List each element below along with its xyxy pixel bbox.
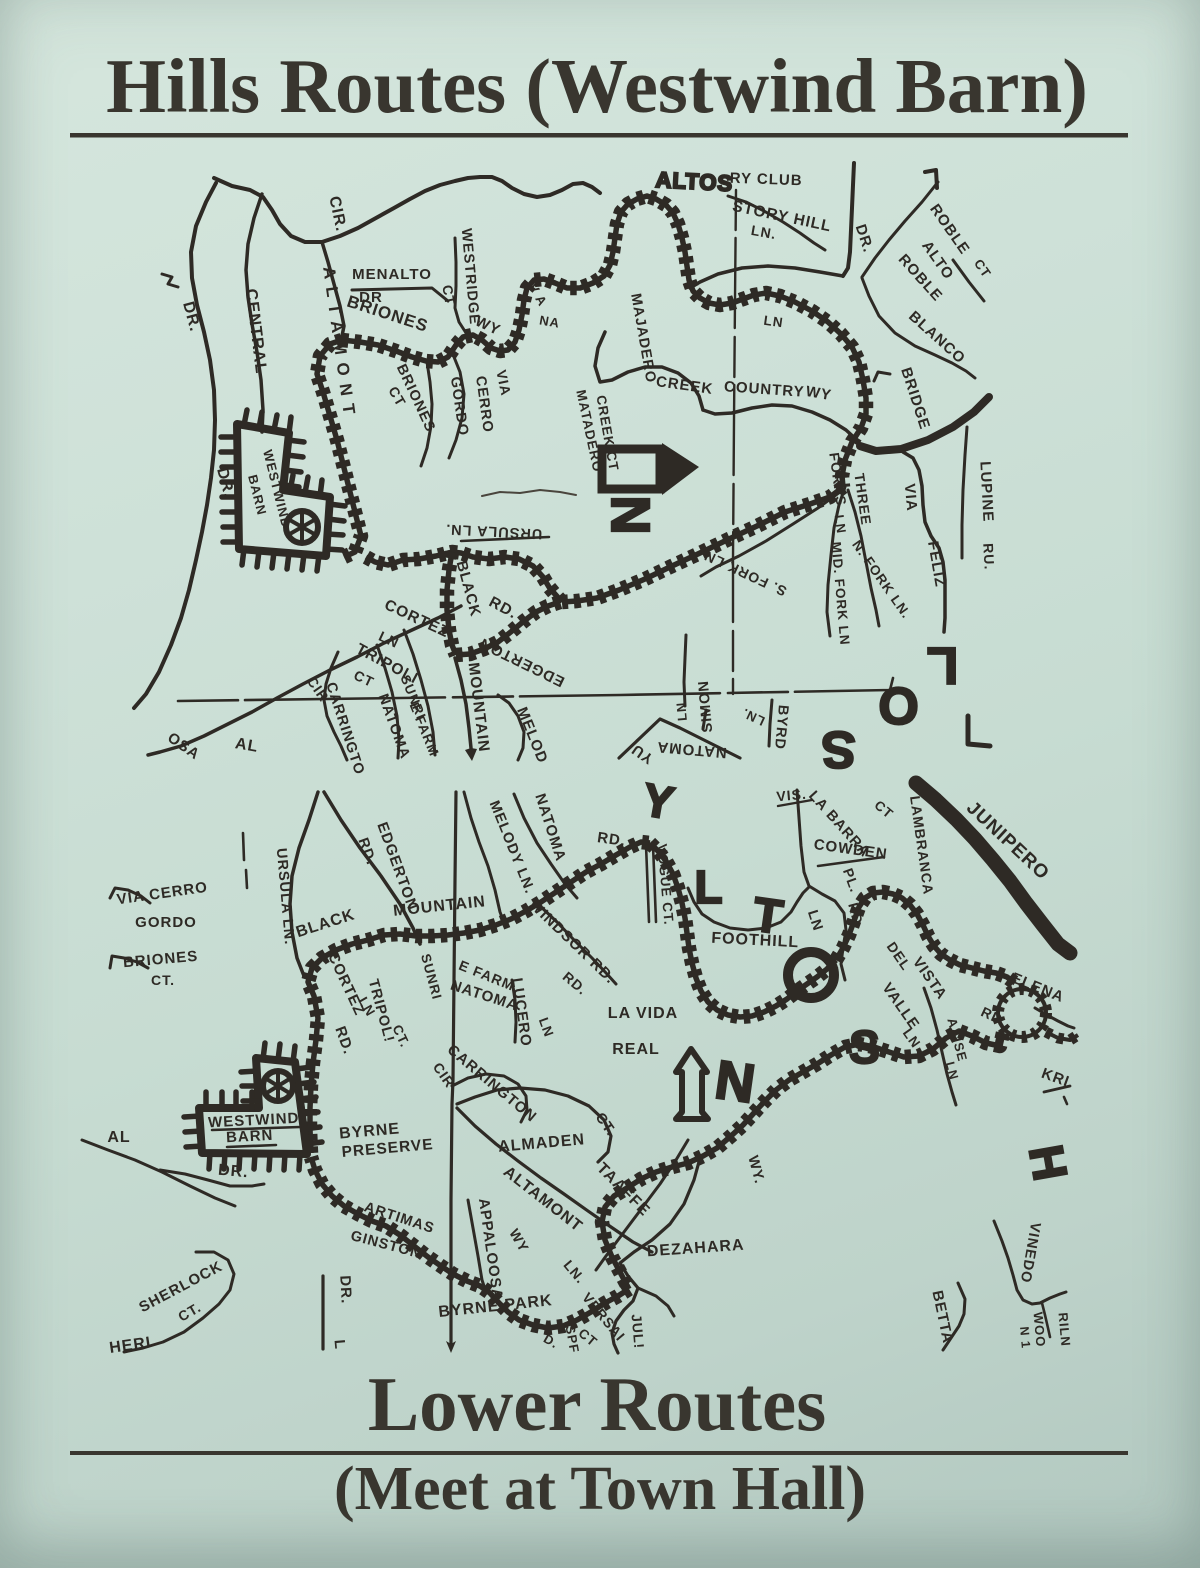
svg-text:RD: RD xyxy=(845,901,866,927)
svg-text:LN: LN xyxy=(804,908,826,933)
svg-text:S: S xyxy=(820,720,856,778)
svg-text:ARTIMAS: ARTIMAS xyxy=(362,1199,436,1237)
svg-text:ROBLE: ROBLE xyxy=(895,251,946,305)
svg-text:(Meet at Town Hall): (Meet at Town Hall) xyxy=(334,1455,866,1523)
svg-text:AAISE: AAISE xyxy=(944,1016,970,1063)
svg-text:H: H xyxy=(1018,1141,1076,1185)
svg-text:RILN: RILN xyxy=(1056,1312,1074,1348)
svg-text:N: N xyxy=(600,496,660,535)
svg-text:ALTO: ALTO xyxy=(918,238,957,283)
svg-text:BRIONES: BRIONES xyxy=(122,948,199,972)
svg-text:VOGUE CT.: VOGUE CT. xyxy=(654,843,676,926)
svg-text:DR.: DR. xyxy=(179,300,203,334)
svg-text:E FARM: E FARM xyxy=(407,700,442,758)
svg-text:N 1: N 1 xyxy=(1017,1326,1033,1350)
svg-text:L: L xyxy=(694,861,723,913)
svg-text:CT: CT xyxy=(871,797,896,821)
svg-text:MAJADERO: MAJADERO xyxy=(627,292,659,384)
svg-text:SUNRI: SUNRI xyxy=(397,673,429,722)
svg-text:SUNRI: SUNRI xyxy=(418,952,445,1001)
svg-text:LN.: LN. xyxy=(750,222,778,242)
svg-text:CT.: CT. xyxy=(151,972,175,988)
svg-text:TRIPOLI: TRIPOLI xyxy=(353,641,421,688)
svg-text:VIS.: VIS. xyxy=(776,786,808,805)
svg-text:URSULA LN.: URSULA LN. xyxy=(445,520,543,541)
svg-text:CERRO: CERRO xyxy=(472,375,496,434)
svg-text:JUL!: JUL! xyxy=(628,1313,647,1349)
svg-text:WY: WY xyxy=(804,383,833,404)
svg-text:PL.: PL. xyxy=(840,866,864,895)
svg-text:O: O xyxy=(877,676,918,734)
svg-text:BYRD: BYRD xyxy=(771,704,791,750)
svg-text:LN: LN xyxy=(900,1026,924,1051)
svg-text:YU: YU xyxy=(628,740,656,767)
svg-text:L: L xyxy=(926,636,959,694)
svg-text:MELOD: MELOD xyxy=(513,705,551,766)
svg-text:LN: LN xyxy=(376,628,401,651)
svg-text:MATADERO: MATADERO xyxy=(573,388,605,473)
svg-text:KRI: KRI xyxy=(1039,1065,1072,1091)
svg-text:AL: AL xyxy=(234,735,260,756)
svg-text:BLACK: BLACK xyxy=(453,559,484,619)
svg-text:RD.: RD. xyxy=(354,836,379,868)
svg-text:DR: DR xyxy=(359,289,383,306)
svg-text:WESTWIND: WESTWIND xyxy=(208,1110,300,1132)
svg-text:WESTWIND: WESTWIND xyxy=(260,448,294,529)
svg-text:STORY HILL: STORY HILL xyxy=(731,198,833,236)
svg-text:MOUNTAIN: MOUNTAIN xyxy=(465,662,493,754)
svg-text:EDGERTON: EDGERTON xyxy=(373,820,421,913)
svg-text:MELODY LN.: MELODY LN. xyxy=(486,799,538,897)
svg-text:GORDO: GORDO xyxy=(447,376,471,437)
svg-text:COUNTRY: COUNTRY xyxy=(724,378,806,401)
svg-text:CT: CT xyxy=(385,384,409,410)
svg-text:WY: WY xyxy=(506,1226,532,1255)
svg-text:LN: LN xyxy=(943,1060,961,1082)
svg-text:TAAFFE: TAAFFE xyxy=(593,1160,653,1220)
svg-text:RU.: RU. xyxy=(980,543,997,571)
svg-text:SIMON: SIMON xyxy=(696,679,717,733)
svg-text:LUPINE: LUPINE xyxy=(976,461,996,523)
svg-text:URSULA LN.: URSULA LN. xyxy=(273,848,297,946)
svg-text:VIA: VIA xyxy=(493,368,514,397)
svg-text:LN: LN xyxy=(763,313,785,331)
svg-text:PRESERVE: PRESERVE xyxy=(341,1136,434,1161)
svg-text:VIA CERRO: VIA CERRO xyxy=(116,879,209,909)
svg-text:CORTEZ: CORTEZ xyxy=(324,950,368,1019)
svg-text:VIA: VIA xyxy=(901,483,920,512)
svg-text:MENALTO: MENALTO xyxy=(352,266,432,283)
svg-text:LN.: LN. xyxy=(560,1257,589,1287)
svg-text:LUCERO: LUCERO xyxy=(508,977,534,1048)
svg-text:RD: RD xyxy=(979,1004,1006,1028)
svg-text:RY CLUB: RY CLUB xyxy=(729,170,802,190)
svg-text:HERI: HERI xyxy=(108,1334,152,1357)
svg-text:OSA: OSA xyxy=(164,729,203,763)
svg-text:APPALOOSA: APPALOOSA xyxy=(475,1197,506,1301)
svg-text:DR.: DR. xyxy=(336,1275,354,1305)
svg-text:RD.: RD. xyxy=(560,968,591,998)
svg-text:WY.: WY. xyxy=(744,1154,767,1186)
svg-text:N. FORK LN.: N. FORK LN. xyxy=(849,537,914,621)
svg-text:BETTA: BETTA xyxy=(928,1289,956,1345)
svg-text:Hills Routes (Westwind Barn): Hills Routes (Westwind Barn) xyxy=(106,43,1088,129)
svg-text:LN: LN xyxy=(355,994,378,1019)
svg-text:SPF: SPF xyxy=(563,1324,583,1354)
svg-text:RD.: RD. xyxy=(596,829,627,850)
svg-text:D.: D. xyxy=(541,1331,561,1351)
svg-text:NATOMA: NATOMA xyxy=(375,692,413,762)
svg-text:BARN: BARN xyxy=(226,1127,274,1146)
svg-text:VERSAI: VERSAI xyxy=(579,1289,629,1344)
svg-text:BYRNE: BYRNE xyxy=(338,1120,400,1142)
svg-text:S. FORK LN.: S. FORK LN. xyxy=(697,545,789,599)
svg-text:CT: CT xyxy=(351,667,376,690)
svg-text:VINEDO: VINEDO xyxy=(1017,1221,1043,1284)
svg-text:CIR: CIR xyxy=(304,673,333,704)
svg-text:T: T xyxy=(749,888,786,945)
svg-text:Y: Y xyxy=(639,773,679,830)
svg-text:E FARM: E FARM xyxy=(457,957,518,994)
svg-text:WY: WY xyxy=(472,313,503,339)
svg-text:FOOTHILL: FOOTHILL xyxy=(711,930,800,952)
svg-text:GINSTON: GINSTON xyxy=(349,1228,423,1262)
svg-text:LA BARRA: LA BARRA xyxy=(805,788,873,861)
svg-text:VISTA: VISTA xyxy=(909,954,950,1003)
svg-text:COWDEN: COWDEN xyxy=(813,836,889,863)
svg-text:BRIONES: BRIONES xyxy=(393,362,438,435)
svg-text:CENTRAL: CENTRAL xyxy=(242,288,270,375)
svg-text:ROBLE: ROBLE xyxy=(926,201,973,258)
svg-text:JUNIPERO: JUNIPERO xyxy=(962,797,1053,884)
svg-text:WOO: WOO xyxy=(1030,1311,1048,1348)
svg-text:CARRINGTON: CARRINGTON xyxy=(444,1041,540,1126)
svg-text:CIR: CIR xyxy=(430,1059,459,1090)
svg-text:CIR.: CIR. xyxy=(325,195,349,234)
svg-text:N: N xyxy=(712,1050,760,1115)
svg-text:LN: LN xyxy=(673,701,690,722)
svg-text:FORKS: FORKS xyxy=(826,451,849,507)
svg-text:BLACK: BLACK xyxy=(294,906,357,941)
svg-text:CORTEZ: CORTEZ xyxy=(382,596,452,641)
svg-text:MID. FORK LN: MID. FORK LN xyxy=(828,541,852,646)
svg-text:EDGERTON: EDGERTON xyxy=(477,634,568,690)
svg-text:AL: AL xyxy=(107,1129,130,1146)
svg-text:NATOMA: NATOMA xyxy=(448,977,520,1015)
svg-text:DEL: DEL xyxy=(884,939,915,974)
svg-text:RD.: RD. xyxy=(331,1024,357,1057)
svg-text:REAL: REAL xyxy=(612,1041,660,1058)
svg-text:LAMBRANCA: LAMBRANCA xyxy=(907,795,937,896)
svg-text:Lower Routes: Lower Routes xyxy=(368,1361,826,1447)
svg-text:NATOMA: NATOMA xyxy=(656,738,728,761)
svg-text:ALTOS: ALTOS xyxy=(655,167,734,196)
svg-text:WINDSOR RD.: WINDSOR RD. xyxy=(525,896,618,987)
svg-text:CARRINGTO: CARRINGTO xyxy=(322,680,367,777)
svg-text:LN: LN xyxy=(832,514,850,535)
svg-text:FELIZ: FELIZ xyxy=(924,540,949,589)
svg-text:RD.: RD. xyxy=(486,594,520,623)
svg-text:BRIONES: BRIONES xyxy=(345,292,431,336)
svg-text:THREE: THREE xyxy=(851,472,874,526)
svg-text:CREEK CT: CREEK CT xyxy=(593,394,621,472)
svg-text:V A: V A xyxy=(525,281,550,309)
svg-text:WESTRIDGE: WESTRIDGE xyxy=(458,228,482,326)
svg-text:SHERLOCK: SHERLOCK xyxy=(136,1258,225,1316)
svg-text:DR.: DR. xyxy=(213,466,237,500)
svg-text:CT: CT xyxy=(575,1325,600,1349)
svg-text:L: L xyxy=(331,1339,349,1351)
svg-text:ALMADEN: ALMADEN xyxy=(498,1131,586,1156)
svg-text:S: S xyxy=(849,1021,881,1073)
svg-text:CT.: CT. xyxy=(175,1299,204,1325)
svg-text:LA VIDA: LA VIDA xyxy=(608,1005,678,1022)
svg-text:CREEK: CREEK xyxy=(655,373,714,398)
svg-text:ALTAMONT: ALTAMONT xyxy=(319,265,360,423)
svg-text:BLANCO: BLANCO xyxy=(905,308,969,368)
svg-text:MOUNTAIN: MOUNTAIN xyxy=(392,893,486,920)
svg-text:ELENA: ELENA xyxy=(1009,969,1067,1006)
svg-text:LN: LN xyxy=(536,1015,557,1039)
svg-text:CT: CT xyxy=(439,284,458,307)
svg-text:TRIPOL!: TRIPOL! xyxy=(365,978,397,1045)
svg-text:NA: NA xyxy=(538,312,561,330)
svg-text:GORDO: GORDO xyxy=(135,914,197,931)
svg-text:LN.: LN. xyxy=(739,705,767,729)
svg-text:ALTAMONT: ALTAMONT xyxy=(500,1163,586,1235)
svg-text:CT: CT xyxy=(971,256,994,280)
svg-text:VALLE: VALLE xyxy=(879,980,923,1033)
svg-text:DR.: DR. xyxy=(852,222,877,255)
svg-text:NATOMA: NATOMA xyxy=(531,791,569,863)
svg-text:CT.: CT. xyxy=(592,1110,619,1139)
svg-text:BARN: BARN xyxy=(245,473,270,517)
svg-text:DEZAHARA: DEZAHARA xyxy=(646,1237,745,1261)
svg-text:CT.: CT. xyxy=(389,1022,412,1049)
svg-text:BRIDGE: BRIDGE xyxy=(897,365,933,431)
svg-text:DR.: DR. xyxy=(217,1162,249,1182)
svg-text:BYRNE PARK: BYRNE PARK xyxy=(438,1292,554,1321)
